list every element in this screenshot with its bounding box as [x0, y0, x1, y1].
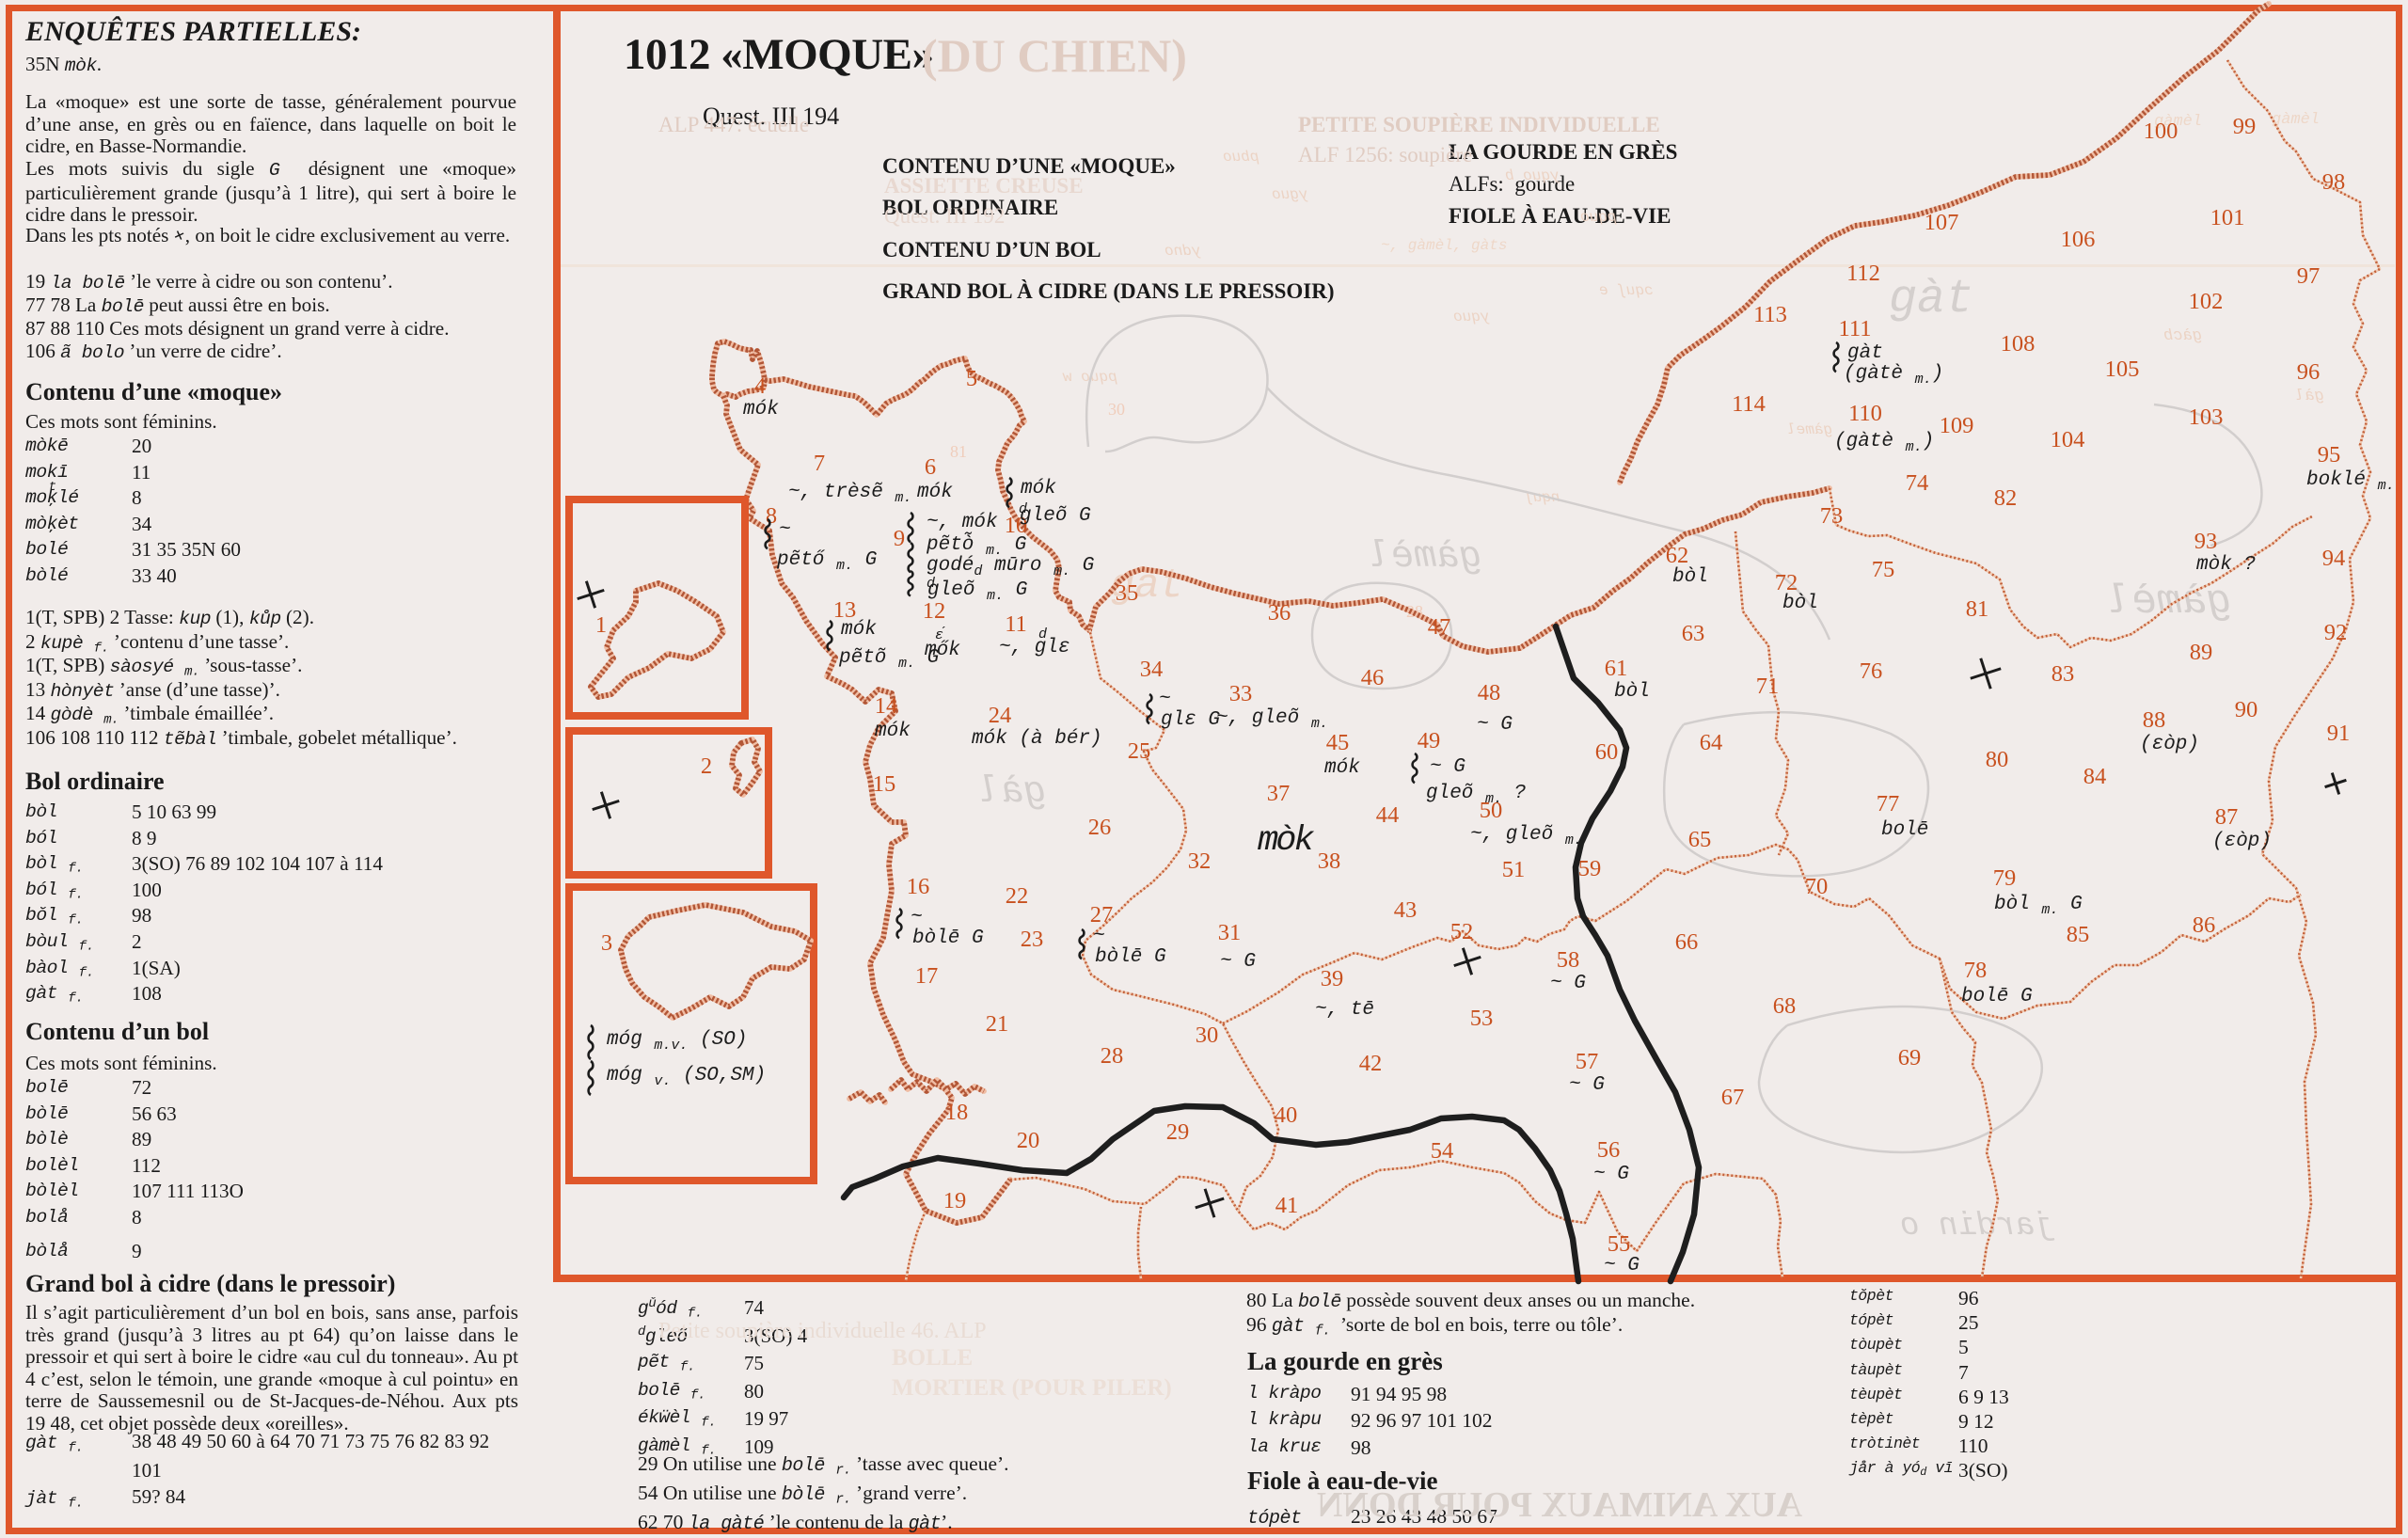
- svg-text:bòl: bòl: [1614, 681, 1650, 703]
- svg-text:gleõ m. ?: gleõ m. ?: [1426, 783, 1526, 807]
- svg-text:66: 66: [1675, 929, 1699, 955]
- svg-text:mók: mók: [1324, 757, 1360, 779]
- svg-text:100: 100: [2144, 119, 2178, 144]
- svg-text:48: 48: [1478, 680, 1501, 706]
- svg-text:bolē: bolē: [1881, 819, 1928, 841]
- svg-text:47: 47: [1428, 614, 1451, 640]
- svg-text:34: 34: [1140, 657, 1164, 682]
- svg-text:~, mók: ~, mók: [927, 512, 998, 533]
- svg-text:79: 79: [1993, 865, 2017, 891]
- svg-text:86: 86: [2193, 912, 2216, 938]
- svg-text:60: 60: [1595, 739, 1619, 765]
- svg-text:114: 114: [1732, 391, 1766, 417]
- svg-text:91: 91: [2327, 721, 2351, 746]
- svg-text:36: 36: [1268, 600, 1291, 626]
- svg-text:20: 20: [1017, 1128, 1040, 1153]
- svg-text:21: 21: [986, 1011, 1009, 1037]
- svg-text:33: 33: [1229, 681, 1253, 706]
- svg-text:22: 22: [1006, 883, 1029, 909]
- svg-text:mók: mók: [875, 721, 911, 742]
- svg-text:24: 24: [989, 703, 1012, 728]
- svg-text:(gàtè m.): (gàtè m.): [1844, 363, 1943, 388]
- svg-text:40: 40: [1275, 1102, 1298, 1128]
- svg-text:55: 55: [1608, 1231, 1631, 1257]
- svg-text:108: 108: [2001, 331, 2036, 357]
- svg-text:~, gleõ m.: ~, gleõ m.: [1470, 824, 1582, 848]
- svg-text:62: 62: [1666, 543, 1689, 568]
- svg-text:4: 4: [754, 373, 766, 399]
- svg-text:29: 29: [1166, 1119, 1190, 1145]
- svg-text:105: 105: [2105, 357, 2140, 382]
- svg-text:45: 45: [1326, 730, 1350, 755]
- svg-text:3: 3: [601, 930, 612, 956]
- svg-text:94: 94: [2322, 546, 2346, 571]
- svg-text:25: 25: [1128, 738, 1151, 764]
- svg-text:75: 75: [1872, 557, 1895, 582]
- svg-text:1: 1: [595, 612, 607, 638]
- svg-text:(ɛòp): (ɛòp): [2212, 831, 2272, 852]
- svg-text:41: 41: [1275, 1193, 1299, 1218]
- svg-text:106: 106: [2061, 227, 2096, 252]
- svg-text:97: 97: [2297, 263, 2321, 289]
- svg-text:92: 92: [2324, 620, 2348, 645]
- svg-text:102: 102: [2189, 289, 2224, 314]
- svg-text:44: 44: [1376, 802, 1400, 828]
- svg-text:móg m.v. (SO): móg m.v. (SO): [607, 1029, 747, 1054]
- svg-text:31: 31: [1218, 920, 1242, 945]
- svg-text:19: 19: [943, 1188, 967, 1213]
- svg-text:81: 81: [1966, 596, 1989, 622]
- svg-text:2: 2: [701, 753, 712, 779]
- svg-text:72: 72: [1775, 570, 1798, 595]
- svg-text:38: 38: [1318, 848, 1341, 874]
- svg-text:30: 30: [1196, 1023, 1219, 1048]
- svg-text:~: ~: [779, 519, 791, 541]
- svg-text:56: 56: [1597, 1137, 1621, 1163]
- svg-text:9: 9: [894, 526, 905, 551]
- svg-text:84: 84: [2083, 764, 2107, 789]
- svg-text:~ G: ~ G: [1593, 1164, 1629, 1185]
- svg-text:5: 5: [966, 366, 977, 391]
- svg-text:27: 27: [1090, 902, 1114, 928]
- svg-text:61: 61: [1605, 656, 1628, 681]
- svg-text:pẽtő m. G: pẽtő m. G: [776, 549, 878, 574]
- svg-text:43: 43: [1394, 897, 1418, 923]
- svg-text:83: 83: [2052, 661, 2075, 687]
- svg-text:mòk ?: mòk ?: [2196, 554, 2256, 576]
- svg-text:58: 58: [1557, 947, 1580, 973]
- svg-text:67: 67: [1721, 1085, 1745, 1110]
- svg-text:70: 70: [1805, 874, 1829, 899]
- svg-text:glɛ G: glɛ G: [1161, 709, 1220, 731]
- svg-text:~ G: ~ G: [1430, 756, 1465, 778]
- svg-text:d: d: [1038, 626, 1047, 642]
- svg-text:42: 42: [1359, 1051, 1383, 1076]
- svg-text:mók: mók: [743, 399, 779, 420]
- svg-text:68: 68: [1773, 993, 1797, 1019]
- svg-text:mók: mók: [1021, 478, 1056, 499]
- svg-text:~ G: ~ G: [1569, 1074, 1605, 1096]
- svg-text:78: 78: [1964, 958, 1988, 983]
- svg-text:32: 32: [1188, 848, 1212, 874]
- svg-text:26: 26: [1088, 815, 1112, 840]
- svg-text:11: 11: [1005, 611, 1027, 637]
- svg-text:~ G: ~ G: [1550, 973, 1586, 994]
- svg-text:63: 63: [1682, 621, 1705, 646]
- svg-text:~, trèsẽ m.: ~, trèsẽ m.: [788, 482, 911, 506]
- svg-text:49: 49: [1418, 728, 1441, 753]
- svg-text:dgleõ G: dgleõ G: [1019, 501, 1091, 527]
- svg-text:~: ~: [1159, 689, 1171, 710]
- svg-text:95: 95: [2318, 442, 2341, 468]
- svg-text:16: 16: [907, 874, 930, 899]
- svg-text:7: 7: [814, 451, 825, 476]
- svg-text:8: 8: [766, 503, 777, 529]
- svg-text:~ G: ~ G: [1477, 714, 1513, 736]
- svg-text:37: 37: [1267, 781, 1291, 806]
- svg-text:28: 28: [1101, 1043, 1124, 1069]
- svg-text:104: 104: [2051, 427, 2085, 452]
- svg-text:godéd mūro m. G: godéd mūro m. G: [927, 555, 1095, 579]
- svg-text:73: 73: [1820, 503, 1844, 529]
- svg-text:109: 109: [1940, 413, 1974, 438]
- svg-text:69: 69: [1898, 1045, 1922, 1070]
- svg-text:39: 39: [1321, 966, 1344, 991]
- svg-text:103: 103: [2189, 404, 2224, 430]
- svg-text:(gàtè m.): (gàtè m.): [1834, 431, 1934, 455]
- svg-text:móg v. (SO,SM): móg v. (SO,SM): [607, 1065, 766, 1089]
- svg-text:bòl: bòl: [1782, 593, 1818, 614]
- svg-text:53: 53: [1470, 1006, 1494, 1031]
- svg-text:mók: mók: [917, 482, 953, 503]
- svg-text:18: 18: [945, 1100, 969, 1125]
- svg-text:12: 12: [923, 598, 946, 624]
- svg-text:bòlē G: bòlē G: [912, 928, 984, 949]
- svg-text:85: 85: [2067, 922, 2090, 947]
- svg-text:~: ~: [1093, 926, 1105, 947]
- svg-text:mòk: mòk: [1258, 821, 1314, 861]
- svg-text:107: 107: [1925, 210, 1959, 235]
- svg-text:51: 51: [1502, 857, 1526, 882]
- svg-text:89: 89: [2190, 640, 2213, 665]
- svg-text:80: 80: [1986, 747, 2009, 772]
- svg-text:bòl: bòl: [1672, 566, 1708, 588]
- svg-text:112: 112: [1846, 261, 1880, 286]
- svg-text:~: ~: [911, 907, 923, 928]
- svg-text:65: 65: [1688, 827, 1712, 852]
- svg-text:59: 59: [1578, 856, 1602, 881]
- svg-text:90: 90: [2235, 697, 2258, 722]
- svg-text:77: 77: [1877, 791, 1900, 817]
- svg-text:~ G: ~ G: [1604, 1255, 1640, 1276]
- svg-text:bòlē G: bòlē G: [1095, 946, 1166, 968]
- svg-text:46: 46: [1361, 665, 1385, 690]
- svg-text:54: 54: [1431, 1138, 1454, 1164]
- svg-text:~, glɛ: ~, glɛ: [999, 637, 1070, 658]
- svg-text:74: 74: [1906, 470, 1929, 496]
- svg-text:boklé m.: boklé m.: [2306, 469, 2395, 494]
- svg-text:23: 23: [1021, 927, 1044, 952]
- svg-text:52: 52: [1450, 919, 1474, 944]
- svg-text:14: 14: [875, 693, 898, 719]
- svg-text:88: 88: [2143, 707, 2166, 733]
- svg-text:111: 111: [1839, 316, 1872, 341]
- svg-text:98: 98: [2322, 169, 2346, 195]
- svg-text:57: 57: [1576, 1049, 1599, 1074]
- svg-text:64: 64: [1700, 730, 1723, 755]
- svg-text:110: 110: [1848, 401, 1882, 426]
- svg-text:gàt: gàt: [1847, 342, 1883, 364]
- svg-text:~, gleõ m.: ~, gleõ m.: [1216, 707, 1328, 732]
- svg-text:~, tē: ~, tē: [1315, 999, 1374, 1021]
- svg-text:mók: mók: [841, 619, 877, 641]
- svg-text:113: 113: [1753, 302, 1787, 327]
- svg-text:~ G: ~ G: [1220, 951, 1256, 973]
- svg-text:76: 76: [1860, 658, 1883, 684]
- svg-text:99: 99: [2233, 114, 2257, 139]
- svg-text:96: 96: [2297, 359, 2321, 385]
- svg-text:bolē G: bolē G: [1961, 986, 2033, 1007]
- svg-text:17: 17: [915, 963, 939, 989]
- svg-text:6: 6: [925, 454, 936, 480]
- svg-text:87: 87: [2215, 804, 2239, 830]
- svg-text:93: 93: [2194, 529, 2218, 554]
- svg-text:82: 82: [1994, 485, 2018, 511]
- svg-text:(ɛòp): (ɛòp): [2140, 734, 2199, 755]
- svg-text:mók (à bér): mók (à bér): [972, 728, 1102, 750]
- svg-text:101: 101: [2210, 205, 2245, 230]
- svg-text:71: 71: [1756, 674, 1780, 699]
- svg-text:15: 15: [873, 771, 896, 797]
- svg-text:dgleõ m. G: dgleõ m. G: [927, 576, 1028, 604]
- svg-text:bòl m. G: bòl m. G: [1994, 894, 2083, 918]
- svg-text:35: 35: [1116, 580, 1139, 606]
